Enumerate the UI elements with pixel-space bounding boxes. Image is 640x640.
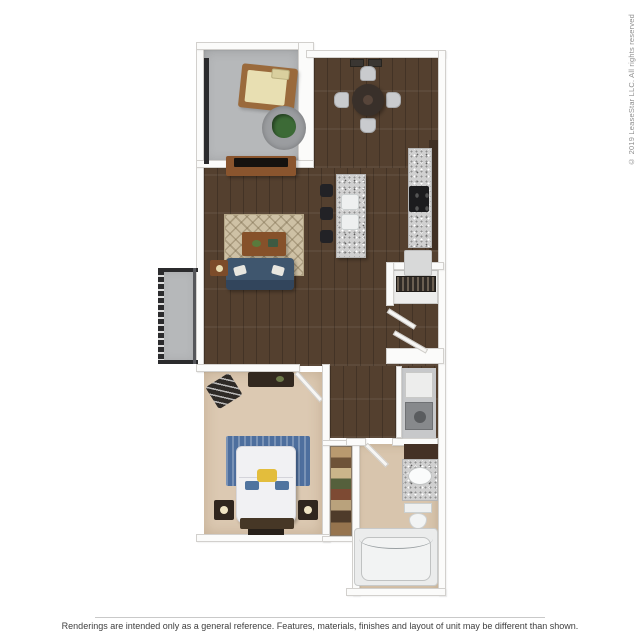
bedroom-right-wall [322,364,330,542]
tv-screen [234,158,288,167]
dining-chair-north [360,66,376,81]
patio-top-wall [196,42,310,50]
barstool-1 [320,184,333,197]
bathroom-bottom-wall [346,588,446,596]
chaise-lounge [238,63,298,113]
landing-edge [193,268,196,364]
landing-railing-top [158,268,198,272]
sofa-pillow-left [233,265,247,277]
plant-leaves-icon [272,114,296,138]
walk-in-closet-shelves [330,446,352,536]
refrigerator [404,250,432,276]
floor-plan [0,0,640,640]
range-cooktop [409,186,429,212]
entry-closet-shelf [396,276,436,292]
table-lamp-icon [216,265,223,272]
bed-pillow-yellow [257,469,277,482]
chaise-pillow [271,68,290,80]
dining-chair-east [386,92,401,108]
sofa-back [226,280,294,290]
bed-pillow-blue-right [275,481,289,490]
dryer-door-icon [414,411,426,423]
sofa [226,258,294,290]
bedroom-bottom-wall [196,534,330,542]
landing-railing-left [158,268,164,364]
coffee-table [242,232,286,256]
lamp-icon [304,506,312,514]
barstool-3 [320,230,333,243]
nightstand-left [214,500,234,520]
patio-railing [204,58,209,164]
nightstand-right [298,500,318,520]
dining-top-wall [306,50,446,58]
island-sink-lower [341,214,359,230]
barstool-2 [320,207,333,220]
right-exterior-wall [438,50,446,596]
table-decor-book [268,239,278,247]
island-sink-upper [341,194,359,210]
washer [405,372,433,398]
patio-left-wall [196,42,204,168]
laundry-left-wall [396,366,402,438]
dining-chair-west [334,92,349,108]
bed [236,446,296,524]
landing-railing-bottom [158,360,198,364]
bed-bench [240,518,294,529]
sofa-pillow-right [271,265,285,277]
entry-closet-left-wall [386,262,394,306]
potted-plant [262,106,306,150]
dining-table-center [363,95,373,105]
dryer [405,402,433,430]
bath-hall-wall-left [346,438,366,446]
patio-dining-divider-wall [298,42,314,168]
dining-table [352,84,384,116]
toilet-tank [404,503,432,513]
disclaimer-text: Renderings are intended only as a genera… [0,621,640,631]
entry-nook-wall [386,348,444,364]
bed-pillow-blue-left [245,481,259,490]
dresser-decor [276,376,284,382]
living-left-wall [196,160,204,372]
bedroom-rug [248,529,284,535]
dining-chair-south [360,118,376,133]
lamp-icon [220,506,228,514]
exterior-landing-floor [158,268,198,364]
divider-line [95,617,545,618]
dresser [248,372,294,387]
wall-art-frame-left [350,59,364,67]
copyright-watermark: © 2019 LeaseStar LLC. All rights reserve… [627,14,636,166]
vanity-sink [408,467,432,485]
side-table [210,260,228,276]
bedroom-top-wall [196,364,300,372]
bathtub [354,528,438,586]
vanity-backsplash [404,444,438,459]
table-decor-plant-icon [252,240,261,247]
shower-rod-arc [359,529,433,549]
